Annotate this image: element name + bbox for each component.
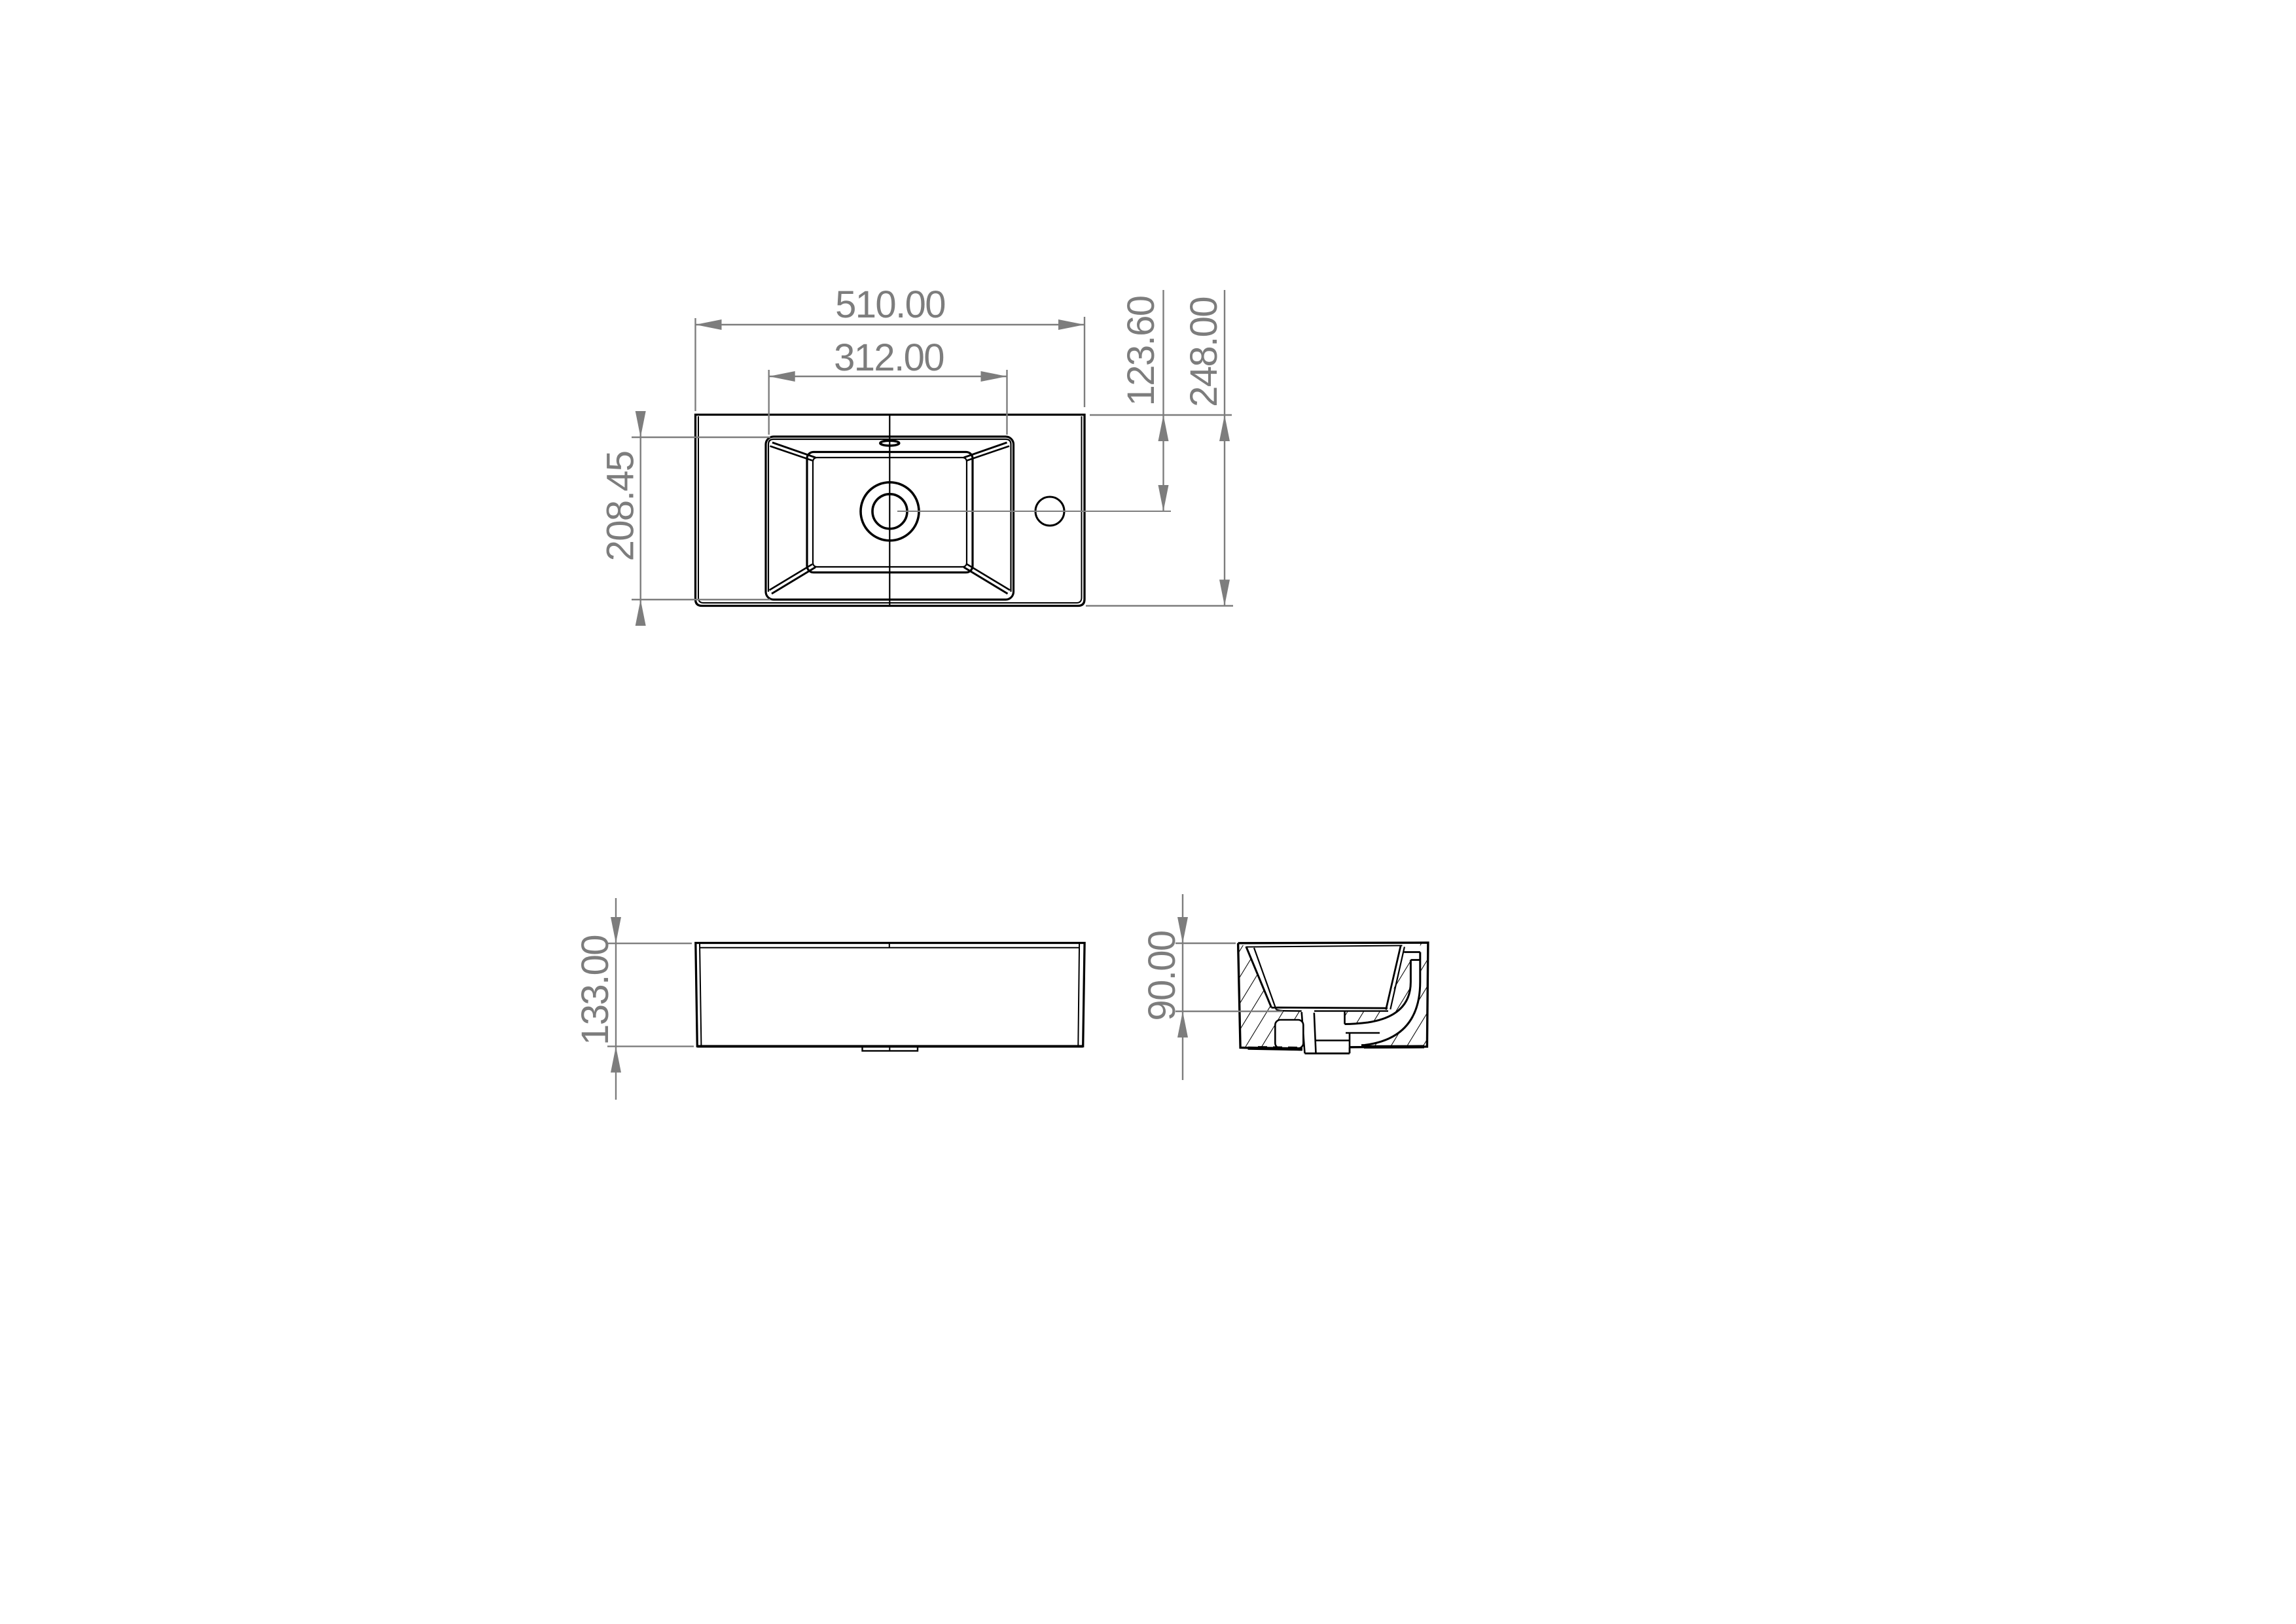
svg-text:208.45: 208.45 (600, 452, 642, 562)
svg-text:510.00: 510.00 (835, 283, 945, 326)
svg-text:312.00: 312.00 (834, 336, 944, 379)
svg-text:90.00: 90.00 (1141, 931, 1183, 1020)
svg-text:248.00: 248.00 (1183, 297, 1225, 407)
svg-text:123.60: 123.60 (1120, 297, 1162, 406)
svg-text:133.00: 133.00 (574, 935, 617, 1045)
